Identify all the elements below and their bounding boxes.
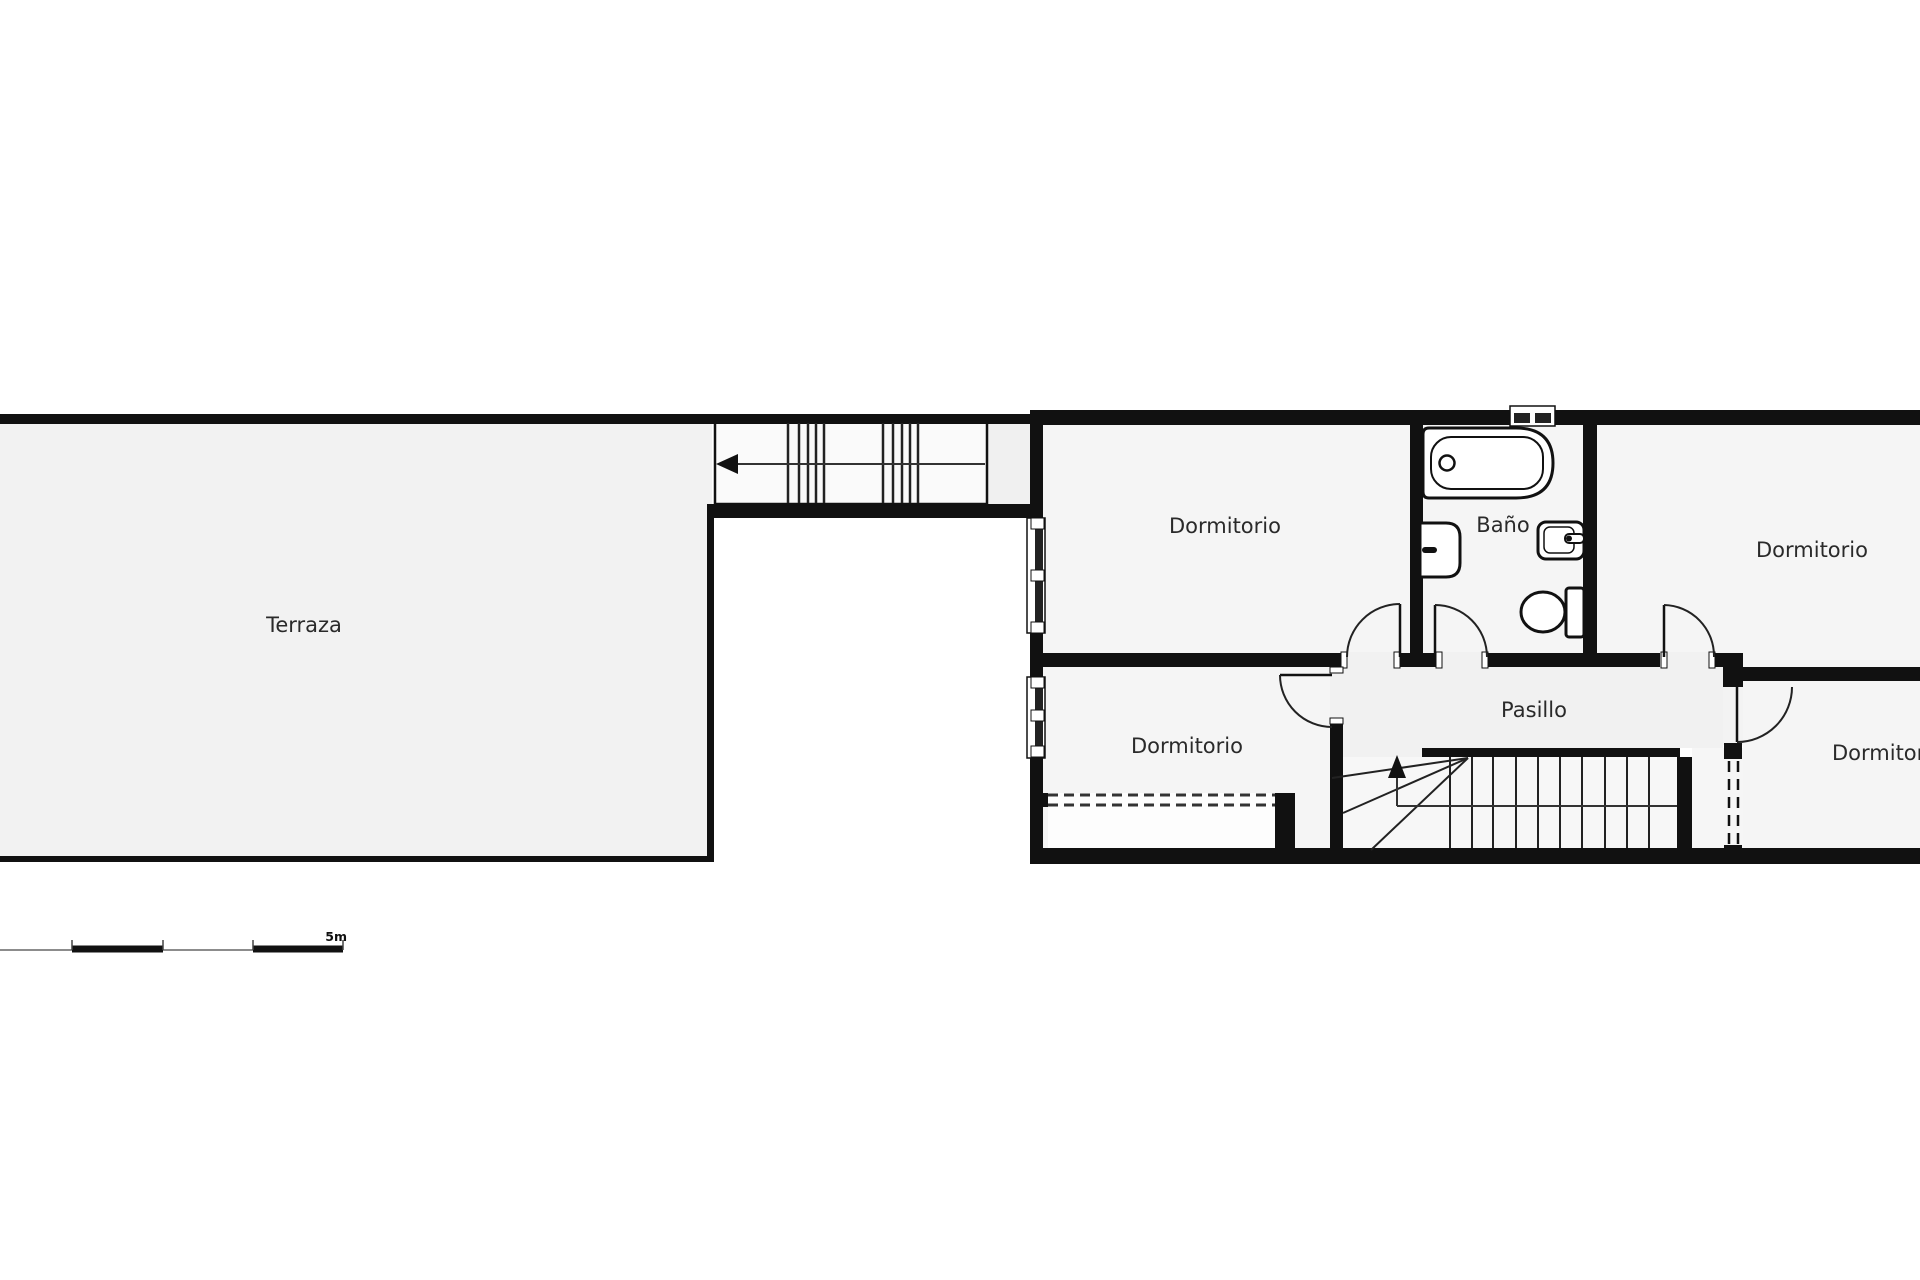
wall-dashed-post-top [1724, 743, 1742, 759]
wall-hallway-left [1330, 724, 1343, 856]
wall-terrace-bottom [0, 856, 712, 862]
window-mullion [1031, 710, 1044, 721]
bedroom-top-left-floor [1043, 425, 1410, 653]
window-mullion [1031, 746, 1044, 757]
wall-building-left [1030, 425, 1043, 518]
scale-bar: 5m [0, 929, 347, 953]
washbasin-tap-knob [1566, 536, 1572, 542]
wardrobe-floor [1048, 793, 1275, 848]
window-mullion [1031, 677, 1044, 688]
doorway [1342, 652, 1400, 668]
toilet-tank [1566, 588, 1584, 637]
wall-bedroom-right-divider [1743, 667, 1920, 681]
wall-hallway-top [1487, 653, 1660, 667]
window-mullion [1031, 570, 1044, 581]
wall-dashed-post-bottom [1724, 845, 1742, 855]
bathtub-icon [1423, 428, 1553, 498]
floorplan-svg: Terraza Dormitorio Baño Dormitorio Dormi… [0, 0, 1920, 1280]
wall-hallway-top [1400, 653, 1437, 667]
door-jamb [1330, 667, 1343, 673]
wall-building-bottom [1030, 848, 1920, 864]
doorway [1437, 652, 1487, 668]
toilet-bowl [1521, 592, 1565, 632]
stair-landing-floor [987, 422, 1030, 504]
window-glass [1535, 413, 1551, 423]
terrace-floor [0, 415, 712, 860]
room-label-bedroom-bottom-left: Dormitorio [1131, 734, 1243, 758]
wall-outer-top-right [1030, 410, 1920, 425]
wall-wardrobe-cap [1038, 793, 1048, 807]
window-glass [1514, 413, 1530, 423]
room-label-terraza: Terraza [265, 613, 342, 637]
window-mullion [1031, 518, 1044, 529]
room-label-hallway: Pasillo [1501, 698, 1567, 722]
scale-bar-label: 5m [325, 929, 347, 944]
wall-wardrobe-stub [1275, 793, 1295, 856]
doorway-floor [1723, 687, 1743, 745]
wall-mid-horizontal [1043, 653, 1342, 667]
wall-corner-post [1723, 653, 1743, 687]
window-bathroom-top [1510, 406, 1555, 426]
window-left-lower [1027, 677, 1045, 758]
toilet-icon [1521, 588, 1584, 637]
hallway-floor-winder [1343, 748, 1422, 757]
doorway [1662, 652, 1714, 668]
room-label-bedroom-top-right: Dormitorio [1756, 538, 1868, 562]
scale-bar-segment [253, 946, 343, 953]
room-label-bedroom-top-left: Dormitorio [1169, 514, 1281, 538]
washbasin-icon [1538, 522, 1584, 559]
wall-terrace-right [707, 504, 714, 862]
wall-stair-top-bar [1422, 748, 1680, 757]
window-left-upper [1027, 518, 1045, 633]
room-label-bathroom: Baño [1476, 513, 1529, 537]
scale-bar-segment [72, 946, 163, 953]
washbasin-icon [1420, 523, 1460, 577]
door-jamb [1436, 652, 1442, 668]
room-label-bedroom-bottom-right: Dormitorio [1832, 741, 1920, 765]
wall-corridor-bottom [711, 504, 1030, 518]
washbasin-tap [1422, 547, 1437, 553]
wall-building-left [1030, 633, 1043, 677]
window-mullion [1031, 622, 1044, 633]
floorplan-canvas: Terraza Dormitorio Baño Dormitorio Dormi… [0, 0, 1920, 1280]
floor-fills [0, 415, 1920, 860]
stair-side-strip [1692, 748, 1743, 848]
wall-stair-right [1677, 757, 1692, 856]
door-jamb [1330, 718, 1343, 724]
